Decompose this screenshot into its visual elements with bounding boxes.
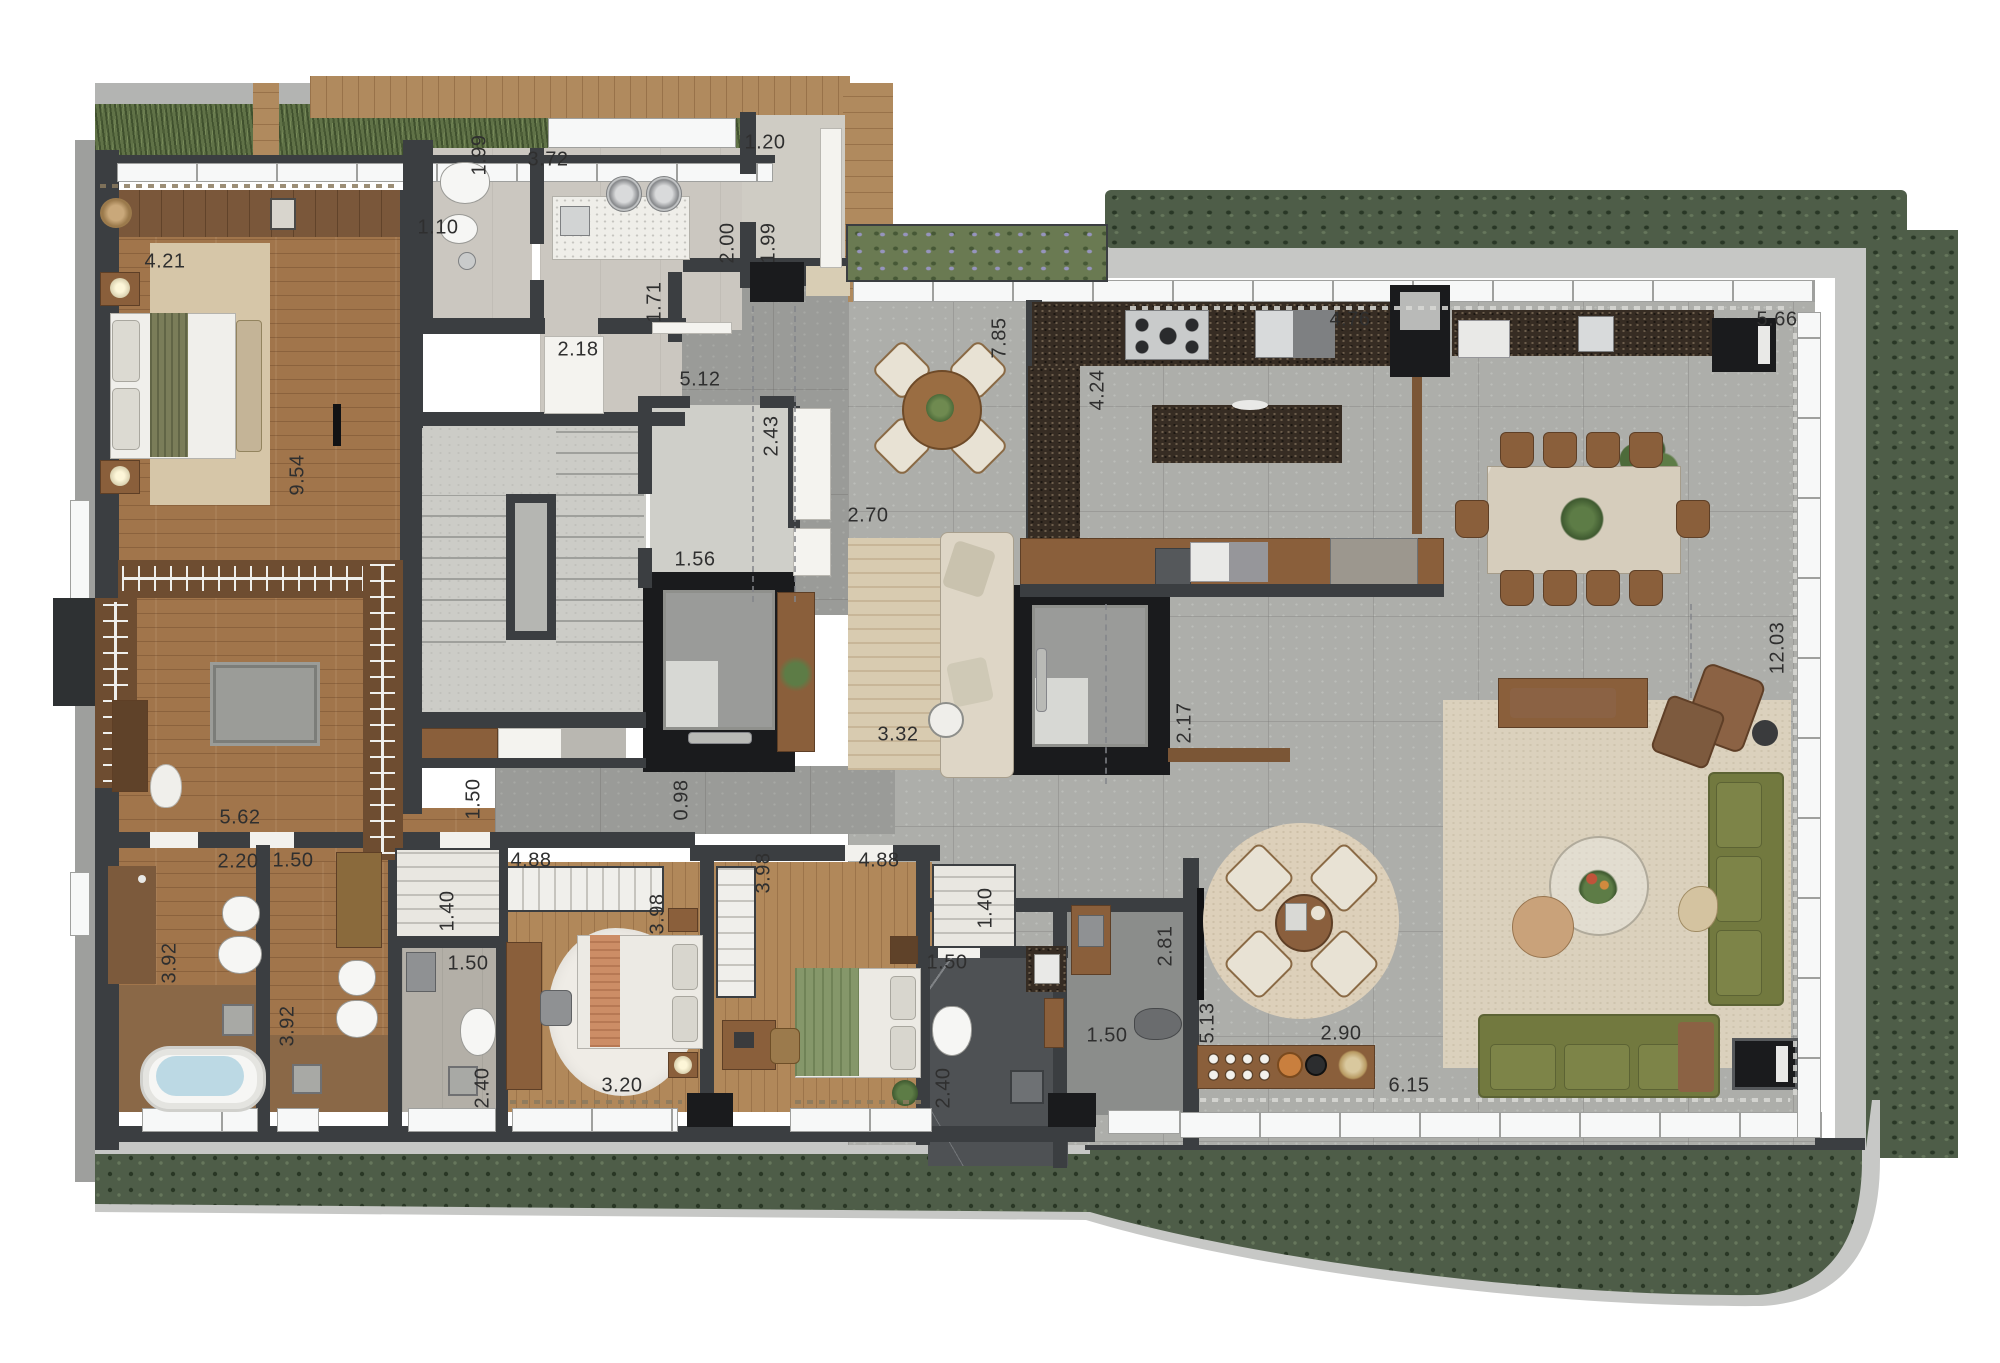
bedroom2-blanket <box>590 935 620 1047</box>
dimension-label-hall-length: 5.12 <box>680 369 721 392</box>
closet-rail-top <box>118 560 403 598</box>
dimension-label-bath4-depth: 2.40 <box>933 1068 956 1109</box>
bedroom3-zigzag <box>795 1100 925 1104</box>
dining-chair-end <box>1676 500 1710 538</box>
dining-centerpiece <box>1558 495 1606 543</box>
bath2-vanity <box>336 852 382 948</box>
bedroom3-pillow <box>890 976 916 1020</box>
bottom-hedge-texture <box>95 1150 1862 1295</box>
lounge-table-cup <box>1310 905 1326 921</box>
lobby-closet-b <box>793 528 831 576</box>
laundry-window <box>548 118 736 148</box>
terrace-zigzag-top <box>1130 306 1790 310</box>
dimension-label-bedroom2-width: 4.88 <box>511 850 552 873</box>
kitchen-granite-column <box>1028 366 1080 562</box>
dining-chair <box>1629 570 1663 606</box>
hall-dash-a <box>752 306 754 602</box>
washer-b <box>646 176 682 212</box>
door-master-bath <box>150 832 198 848</box>
dimension-label-powder-width: 1.50 <box>1087 1025 1128 1048</box>
dimension-label-gourmet-width: 5.66 <box>1757 309 1798 332</box>
dimension-label-bath2-depth: 3.92 <box>277 1006 300 1047</box>
kitchen-glass-cabinet <box>1330 538 1418 586</box>
dimension-label-corridor-b-width: 0.98 <box>671 780 694 821</box>
hall-dash-b <box>794 306 796 602</box>
master-bed-bench <box>236 320 262 452</box>
bathtub-water <box>156 1056 244 1096</box>
bedroom2-lamp <box>674 1056 692 1074</box>
master-bed-blanket <box>150 313 188 457</box>
bath2-bidet <box>338 960 376 996</box>
wall-under-cabinets <box>393 758 646 768</box>
master-bath-counter <box>108 866 156 984</box>
console-plant <box>1336 1048 1370 1082</box>
window-living-bottom <box>1180 1112 1822 1138</box>
dimension-label-storage-depth-a: 2.00 <box>717 223 740 264</box>
dimension-label-closet3-depth: 1.40 <box>975 888 998 929</box>
kitchen-appliance-boxes <box>1190 542 1268 582</box>
coffee-machine-b <box>1305 1054 1327 1076</box>
cooktop <box>1125 310 1209 360</box>
wall-service-top <box>403 318 545 334</box>
laundry-door-leaf <box>652 322 732 334</box>
dimension-label-service-pass: 1.71 <box>644 282 667 323</box>
wall-stair-bottom <box>403 712 646 728</box>
coffee-machine-a <box>1277 1052 1303 1078</box>
master-plant <box>100 198 132 228</box>
dimension-label-kitchen-depth: 4.24 <box>1087 370 1110 411</box>
powder-toilet <box>1134 1008 1182 1040</box>
powder-plant <box>1098 1044 1180 1110</box>
corridor-gray-shade <box>495 766 895 834</box>
dimension-label-bedroom3-depth: 3.98 <box>753 853 776 894</box>
dining-chair <box>1586 432 1620 468</box>
understair-white-cabinet <box>498 728 626 760</box>
dining-chair-end <box>1455 500 1489 538</box>
window-bath2 <box>277 1108 319 1132</box>
bath3-sink <box>406 952 436 992</box>
wc-faucet <box>458 252 476 270</box>
dimension-label-foyer-width: 2.70 <box>848 505 889 528</box>
dimension-label-master-bath-depth: 3.92 <box>159 943 182 984</box>
dining-chair <box>1500 432 1534 468</box>
foyer-side-table <box>928 702 964 738</box>
bath2-toilet <box>336 1000 378 1038</box>
bedroom3-pillow2 <box>890 1026 916 1070</box>
bedroom3-chair <box>770 1028 800 1064</box>
dimension-label-storage-width: 1.20 <box>745 132 786 155</box>
coffee-table-flowers <box>1577 862 1619 904</box>
gourmet-appliance <box>1458 320 1510 358</box>
foyer-console-plant <box>780 652 812 696</box>
terrace-zigzag-bottom <box>1200 1098 1790 1102</box>
elevator2-car <box>1032 605 1148 747</box>
wood-side-table <box>1512 896 1574 958</box>
bath2-wetzone <box>262 1035 392 1112</box>
lounge-table-tray <box>1285 903 1307 931</box>
wall-top-sill <box>95 155 775 163</box>
living-sofa-right <box>1708 772 1784 1006</box>
dimension-label-foyer-rug-length: 3.32 <box>878 724 919 747</box>
bath4-toilet <box>932 1006 972 1056</box>
closet-pouf <box>150 764 182 808</box>
fireplace-slot <box>1776 1046 1788 1082</box>
dimension-label-bath3-depth: 2.40 <box>472 1068 495 1109</box>
closet-island <box>210 662 320 746</box>
wall-lobby-top <box>650 396 690 408</box>
dimension-label-bedroom3-width: 4.88 <box>859 850 900 873</box>
master-feature-wall <box>95 190 403 237</box>
ac-box-powder <box>1048 1093 1096 1127</box>
dimension-label-wc-width: 1.10 <box>418 217 459 240</box>
terrace-dash <box>1105 604 1107 784</box>
dimension-label-bath2-width: 1.50 <box>273 850 314 873</box>
dimension-label-living-width: 6.15 <box>1389 1075 1430 1098</box>
dining-chair <box>1543 432 1577 468</box>
deck-connector <box>253 83 279 157</box>
dining-chair <box>1500 570 1534 606</box>
master-bidet <box>222 896 260 932</box>
living-bench-leather <box>1510 688 1616 718</box>
bath4-shower-drain <box>1010 1070 1044 1104</box>
dimension-label-bedroom2-bed-span: 3.20 <box>602 1075 643 1098</box>
dining-chair <box>1543 570 1577 606</box>
master-bed-pillows <box>112 320 140 382</box>
closet-rail-right <box>363 560 403 860</box>
living-dash <box>1690 604 1692 698</box>
fireplace <box>1732 1038 1798 1090</box>
bedroom2-wardrobe <box>506 866 664 912</box>
tv-wall-bar <box>1197 888 1204 1000</box>
dimension-label-laundry-width: 3.72 <box>528 149 569 172</box>
entry-mat-light <box>806 266 850 296</box>
window-bath3 <box>408 1108 496 1132</box>
mb-counter-faucet <box>138 875 146 883</box>
entry-door-mat <box>750 262 804 302</box>
bedroom2-pillow <box>672 944 698 990</box>
washer-a <box>606 176 642 212</box>
dimension-label-bath4-width: 1.50 <box>927 952 968 975</box>
master-toilet <box>218 936 262 974</box>
master-deck-zigzag <box>100 184 398 188</box>
powder-basin <box>1078 915 1104 947</box>
wall-art-frame <box>270 198 296 230</box>
ac-box-bedrooms <box>687 1093 733 1127</box>
wall-lobby-left-a <box>638 396 652 494</box>
dimension-label-closet2-depth: 1.40 <box>437 891 460 932</box>
breakfast-table-plant <box>926 394 954 422</box>
dimension-label-bath3-width: 1.50 <box>448 953 489 976</box>
kitchen-corner-inner <box>1400 292 1440 330</box>
bath2-shower-drain <box>292 1064 322 1094</box>
dimension-label-corridor-a-width: 1.50 <box>463 779 486 820</box>
stair-treads-right <box>556 430 644 643</box>
window-bedroom2 <box>512 1108 678 1132</box>
nightstand-lamp2 <box>110 466 130 486</box>
dimension-label-service-width: 2.18 <box>558 339 599 362</box>
master-bed-pillows2 <box>112 388 140 450</box>
bedroom2-pillow2 <box>672 996 698 1042</box>
understair-wood-cabinet <box>418 728 498 760</box>
storage-cabinet <box>820 128 842 268</box>
bedroom2-desk <box>506 942 542 1090</box>
dining-chair <box>1586 570 1620 606</box>
bedroom2-chair <box>540 990 572 1026</box>
window-powder <box>1108 1110 1180 1134</box>
hall-low-wall-h <box>1168 748 1290 762</box>
bedroom3-laptop <box>734 1032 754 1048</box>
stair-treads-left <box>420 495 506 643</box>
bath3-toilet <box>460 1008 496 1056</box>
window-kitchen-top <box>853 280 1815 302</box>
bedroom2-zigzag <box>510 1100 682 1104</box>
nightstand-lamp <box>110 278 130 298</box>
kitchen-island <box>1152 405 1342 463</box>
wall-kitchen-hall <box>1020 584 1444 597</box>
bedroom3-blanket <box>795 968 859 1076</box>
elevator1-door <box>688 732 752 744</box>
kitchen-double-sink <box>1255 310 1335 358</box>
dimension-label-living-depth: 12.03 <box>1767 622 1790 675</box>
bedroom3-nightstand <box>890 936 918 964</box>
dimension-label-elevator2-width: 2.17 <box>1174 703 1197 744</box>
mb-shower-drain <box>222 1004 254 1036</box>
floor-plan-canvas: 4.219.541.993.721.101.202.001.991.712.18… <box>0 0 2000 1363</box>
bath4-bench <box>1044 998 1064 1048</box>
master-tv <box>333 404 341 446</box>
dimension-label-wc-depth: 1.99 <box>469 135 492 176</box>
island-dish <box>1232 400 1268 410</box>
dimension-label-kitchen-width: 4.76 <box>1330 309 1371 332</box>
dimension-label-closet-corridor-length: 5.62 <box>220 807 261 830</box>
dimension-label-lounge-depth: 5.13 <box>1197 1003 1220 1044</box>
lobby-closet <box>793 408 831 520</box>
dimension-label-bedroom2-depth: 3.98 <box>647 894 670 935</box>
dimension-label-powder-corridor: 2.81 <box>1155 926 1178 967</box>
armchair-side-table <box>1752 720 1778 746</box>
terrace-zigzag-right <box>1793 315 1797 1095</box>
bedroom2-nightstand-a <box>668 908 698 932</box>
dining-chair <box>1629 432 1663 468</box>
dimension-label-terrace-depth: 7.85 <box>989 318 1012 359</box>
elevator1-car <box>663 590 775 730</box>
dimension-label-master-bath-width: 2.20 <box>218 851 259 874</box>
dimension-label-master-suite-depth: 9.54 <box>287 455 310 496</box>
dimension-label-storage-depth-b: 1.99 <box>758 223 781 264</box>
wall-bedrooms-top <box>690 845 940 861</box>
elevator2-door <box>1036 648 1047 712</box>
coffee-cups <box>1205 1051 1271 1083</box>
living-sofa-bottom <box>1478 1014 1720 1098</box>
bbq-tray <box>1758 326 1770 364</box>
dimension-label-master-bedroom-width: 4.21 <box>145 251 186 274</box>
dimension-label-lobby-depth: 2.43 <box>761 416 784 457</box>
stair-void <box>506 494 556 640</box>
window-bedroom3 <box>790 1108 932 1132</box>
dimension-label-coffee-bar-width: 2.90 <box>1321 1023 1362 1046</box>
bath4-basin <box>1034 954 1060 984</box>
door-bedroom2 <box>440 832 490 848</box>
laundry-sink <box>560 206 590 236</box>
closet-dresser <box>112 700 148 792</box>
bedroom3-wardrobe <box>716 866 756 998</box>
gourmet-sink <box>1578 316 1614 352</box>
lavender-planter <box>846 224 1108 282</box>
dimension-label-elevator-hall-width: 1.56 <box>675 549 716 572</box>
wall-lobby-left-b <box>638 548 652 588</box>
top-deck-walkway <box>310 76 850 118</box>
window-living-right <box>1797 312 1821 1138</box>
